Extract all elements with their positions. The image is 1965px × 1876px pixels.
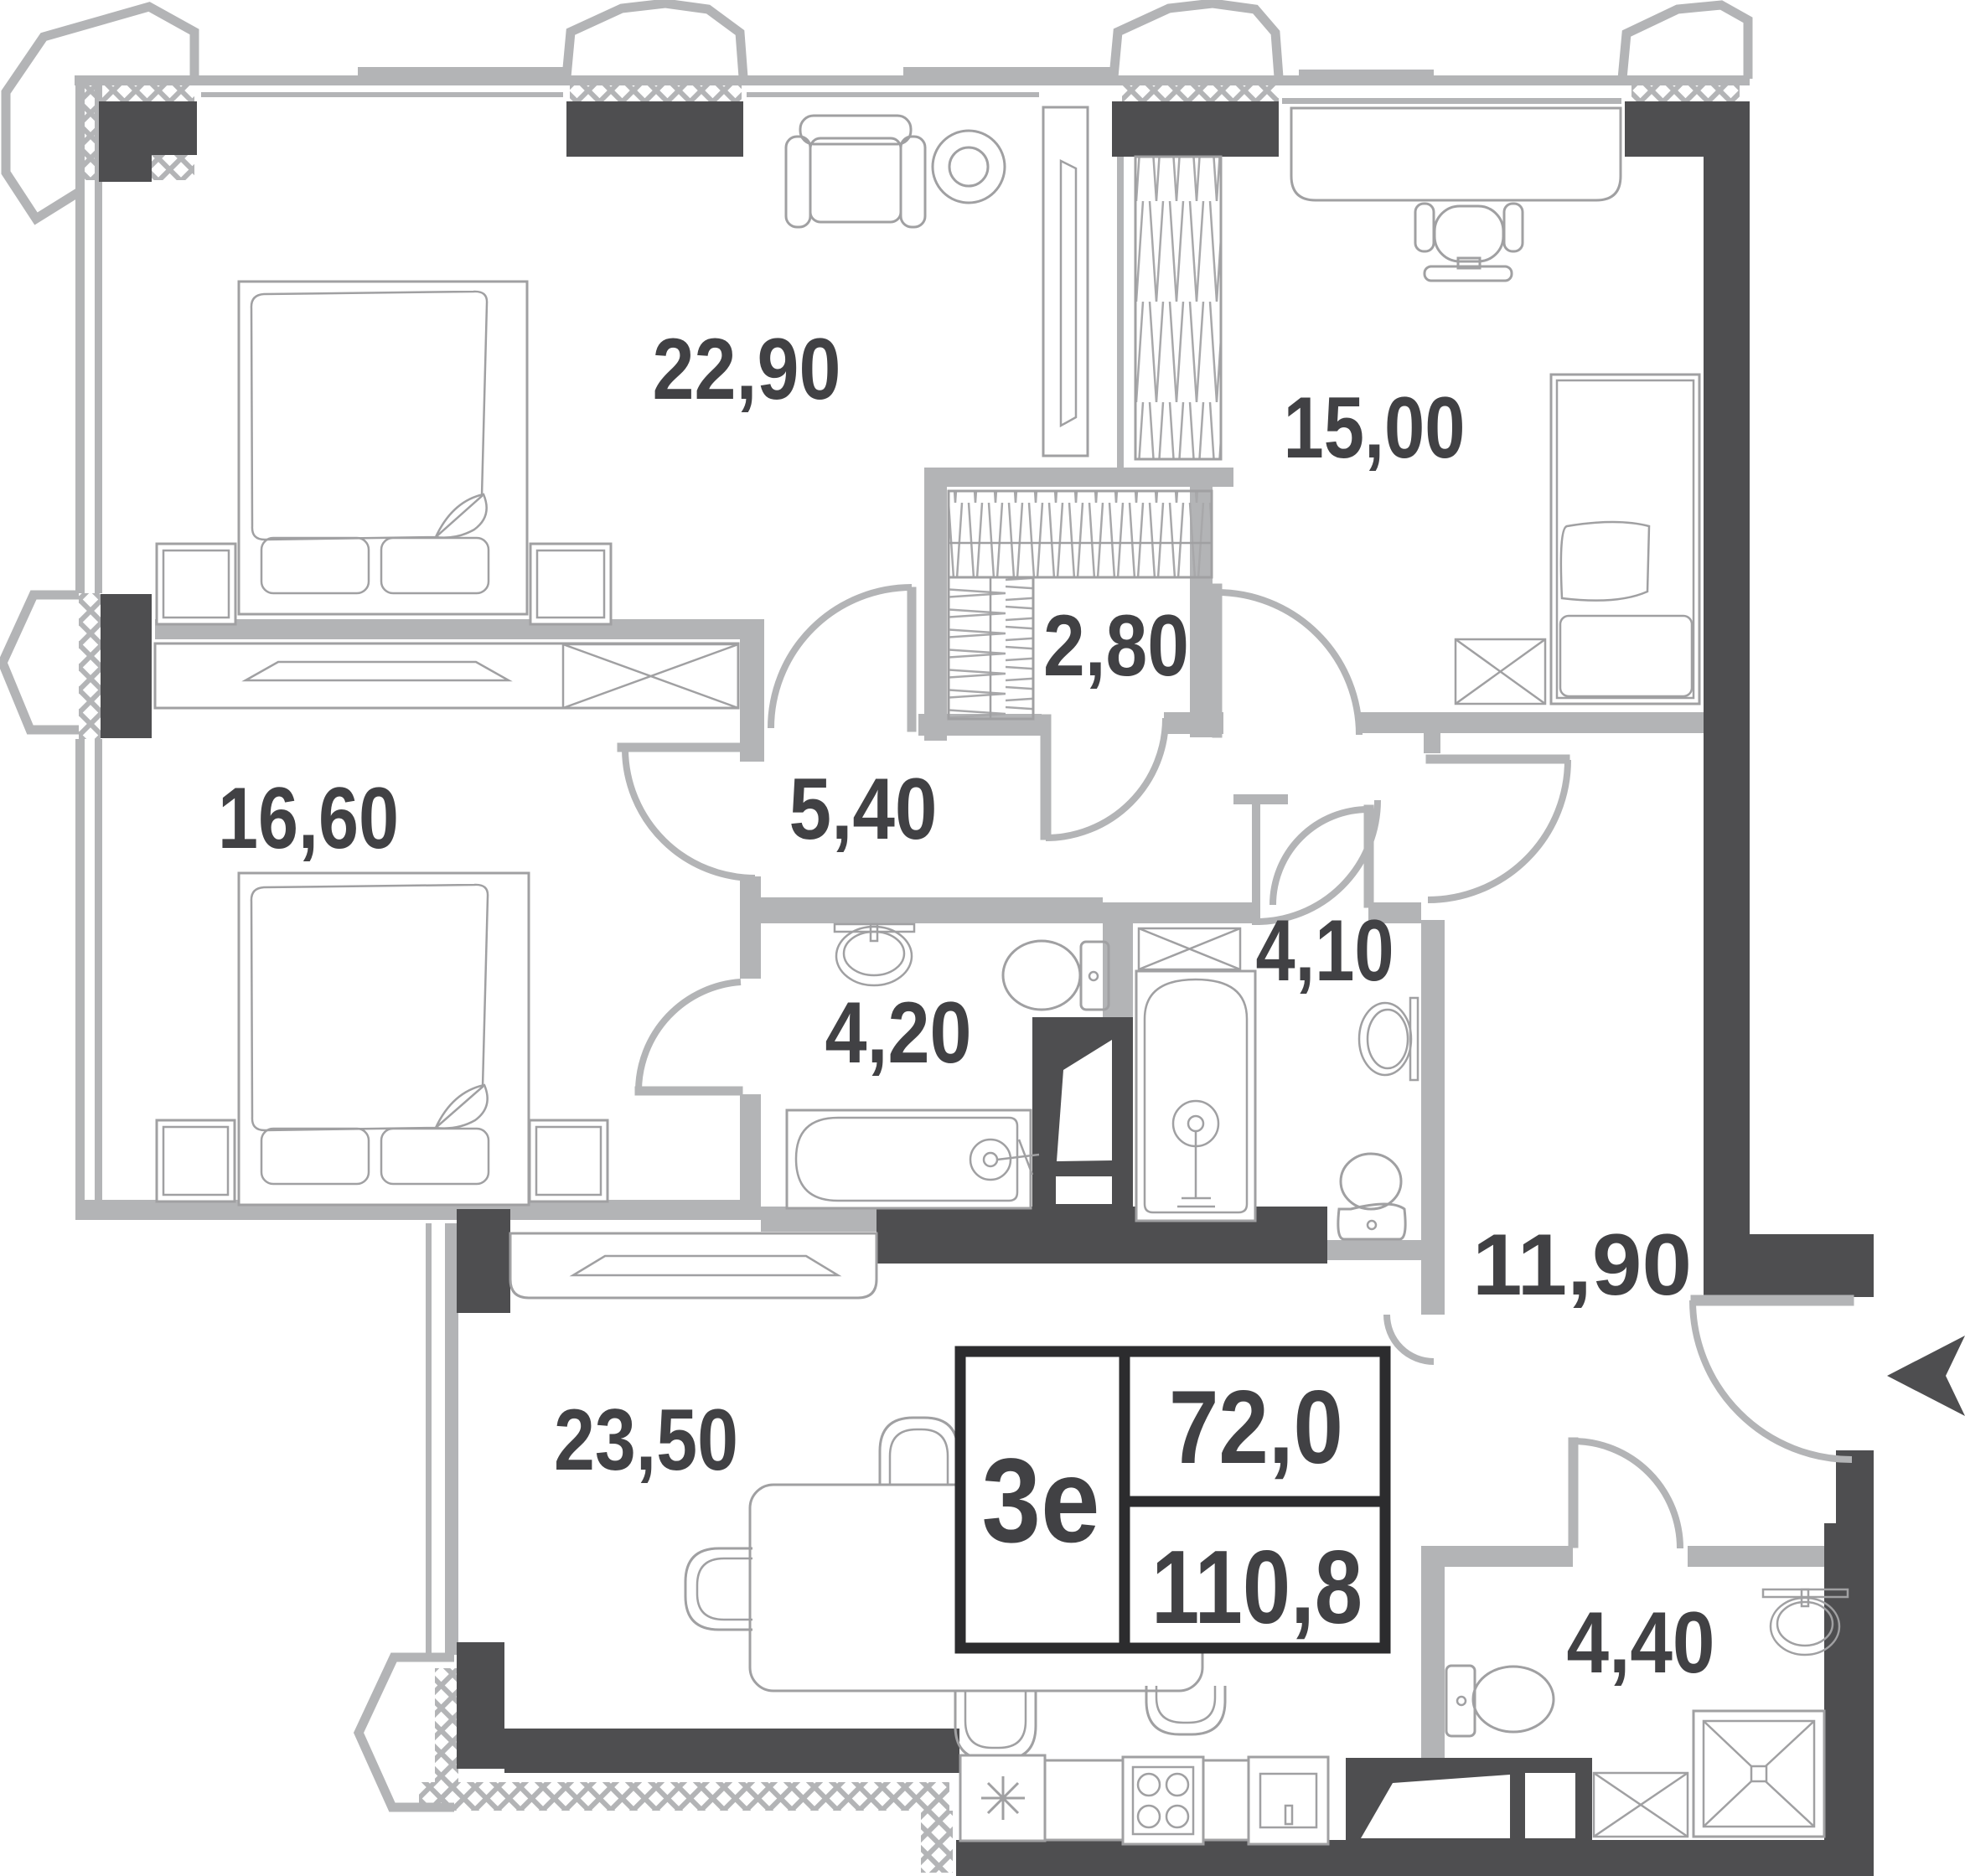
svg-text:15,00: 15,00	[1284, 380, 1466, 477]
svg-text:72,0: 72,0	[1169, 1370, 1343, 1486]
svg-text:4,40: 4,40	[1567, 1594, 1715, 1692]
svg-text:2,80: 2,80	[1043, 597, 1189, 695]
svg-text:22,90: 22,90	[653, 321, 841, 418]
svg-text:110,8: 110,8	[1151, 1530, 1363, 1646]
svg-text:4,10: 4,10	[1256, 902, 1394, 1000]
svg-text:16,60: 16,60	[218, 770, 399, 867]
svg-text:5,40: 5,40	[789, 761, 938, 858]
svg-text:4,20: 4,20	[825, 985, 972, 1082]
svg-text:23,50: 23,50	[554, 1392, 738, 1489]
svg-text:3е: 3е	[982, 1434, 1100, 1568]
svg-text:11,90: 11,90	[1472, 1217, 1692, 1314]
